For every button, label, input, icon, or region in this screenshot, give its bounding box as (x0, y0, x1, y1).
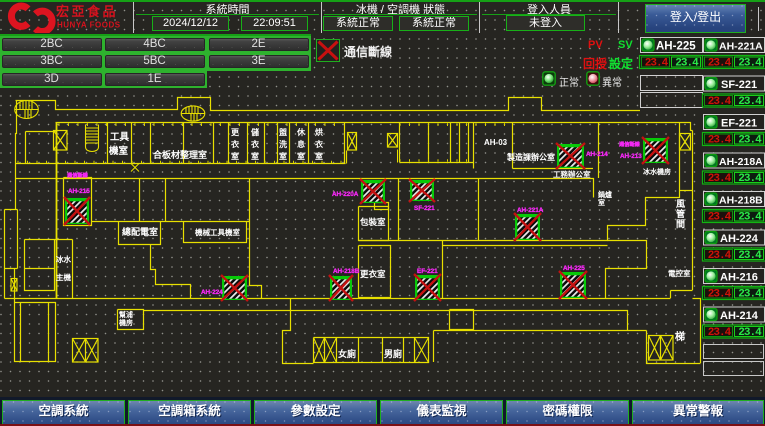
svg-text:更衣室: 更衣室 (360, 269, 386, 279)
svg-text:AH-221A: AH-221A (517, 207, 544, 214)
svg-text:SF-221: SF-221 (414, 205, 435, 212)
svg-text:總配電室: 總配電室 (122, 226, 158, 237)
svg-text:AH-218B: AH-218B (333, 268, 360, 275)
svg-text:室: 室 (251, 151, 259, 161)
svg-text:室: 室 (279, 151, 287, 161)
svg-text:鍋爐: 鍋爐 (598, 190, 612, 199)
svg-text:AH-216: AH-216 (720, 272, 758, 284)
svg-text:工務辦公室: 工務辦公室 (553, 169, 591, 179)
svg-text:衣: 衣 (251, 139, 259, 149)
svg-text:AH-03: AH-03 (484, 138, 508, 147)
svg-text:息: 息 (297, 139, 305, 149)
svg-text:衣: 衣 (231, 139, 239, 149)
svg-text:工具: 工具 (110, 132, 130, 143)
svg-text:通信斷線: 通信斷線 (67, 171, 89, 179)
svg-text:機械工具機室: 機械工具機室 (195, 227, 240, 237)
svg-text:盥: 盥 (279, 127, 287, 137)
svg-text:SF-221: SF-221 (721, 79, 757, 91)
svg-text:冰水: 冰水 (56, 254, 71, 264)
svg-text:AH-225: AH-225 (656, 41, 696, 53)
svg-text:AH-225: AH-225 (563, 265, 585, 272)
svg-text:主機: 主機 (56, 272, 71, 282)
svg-text:AH-218A: AH-218A (719, 156, 763, 168)
svg-text:製造課辦公室: 製造課辦公室 (506, 152, 555, 162)
svg-text:AH-221A: AH-221A (719, 41, 763, 53)
svg-text:AH-214: AH-214 (586, 151, 608, 158)
svg-text:男廁: 男廁 (384, 348, 402, 359)
svg-text:AH-218B: AH-218B (719, 195, 763, 207)
svg-text:室: 室 (297, 151, 305, 161)
svg-text:AH-224: AH-224 (720, 233, 759, 245)
svg-text:室: 室 (231, 151, 239, 161)
svg-text:室: 室 (315, 151, 323, 161)
svg-text:室: 室 (598, 198, 605, 207)
svg-text:更: 更 (231, 127, 240, 137)
svg-text:AH-215: AH-215 (68, 188, 90, 195)
svg-text:衣: 衣 (315, 139, 323, 149)
svg-text:烘: 烘 (315, 127, 323, 137)
svg-text:包裝室: 包裝室 (360, 217, 386, 227)
svg-text:儲: 儲 (250, 127, 259, 137)
svg-text:機室: 機室 (109, 145, 129, 157)
svg-text:AH-224: AH-224 (201, 289, 223, 296)
svg-text:AH-220A: AH-220A (332, 191, 359, 198)
svg-text:合板材整理室: 合板材整理室 (153, 149, 207, 160)
svg-text:女廁: 女廁 (338, 348, 356, 359)
svg-text:機房: 機房 (119, 318, 133, 327)
svg-text:EF-221: EF-221 (721, 118, 757, 130)
svg-text:AH-214: AH-214 (720, 310, 759, 322)
svg-text:EF-221: EF-221 (417, 268, 438, 275)
svg-text:幫浦: 幫浦 (119, 310, 133, 319)
svg-text:休: 休 (296, 127, 306, 137)
svg-text:洗: 洗 (279, 139, 287, 149)
